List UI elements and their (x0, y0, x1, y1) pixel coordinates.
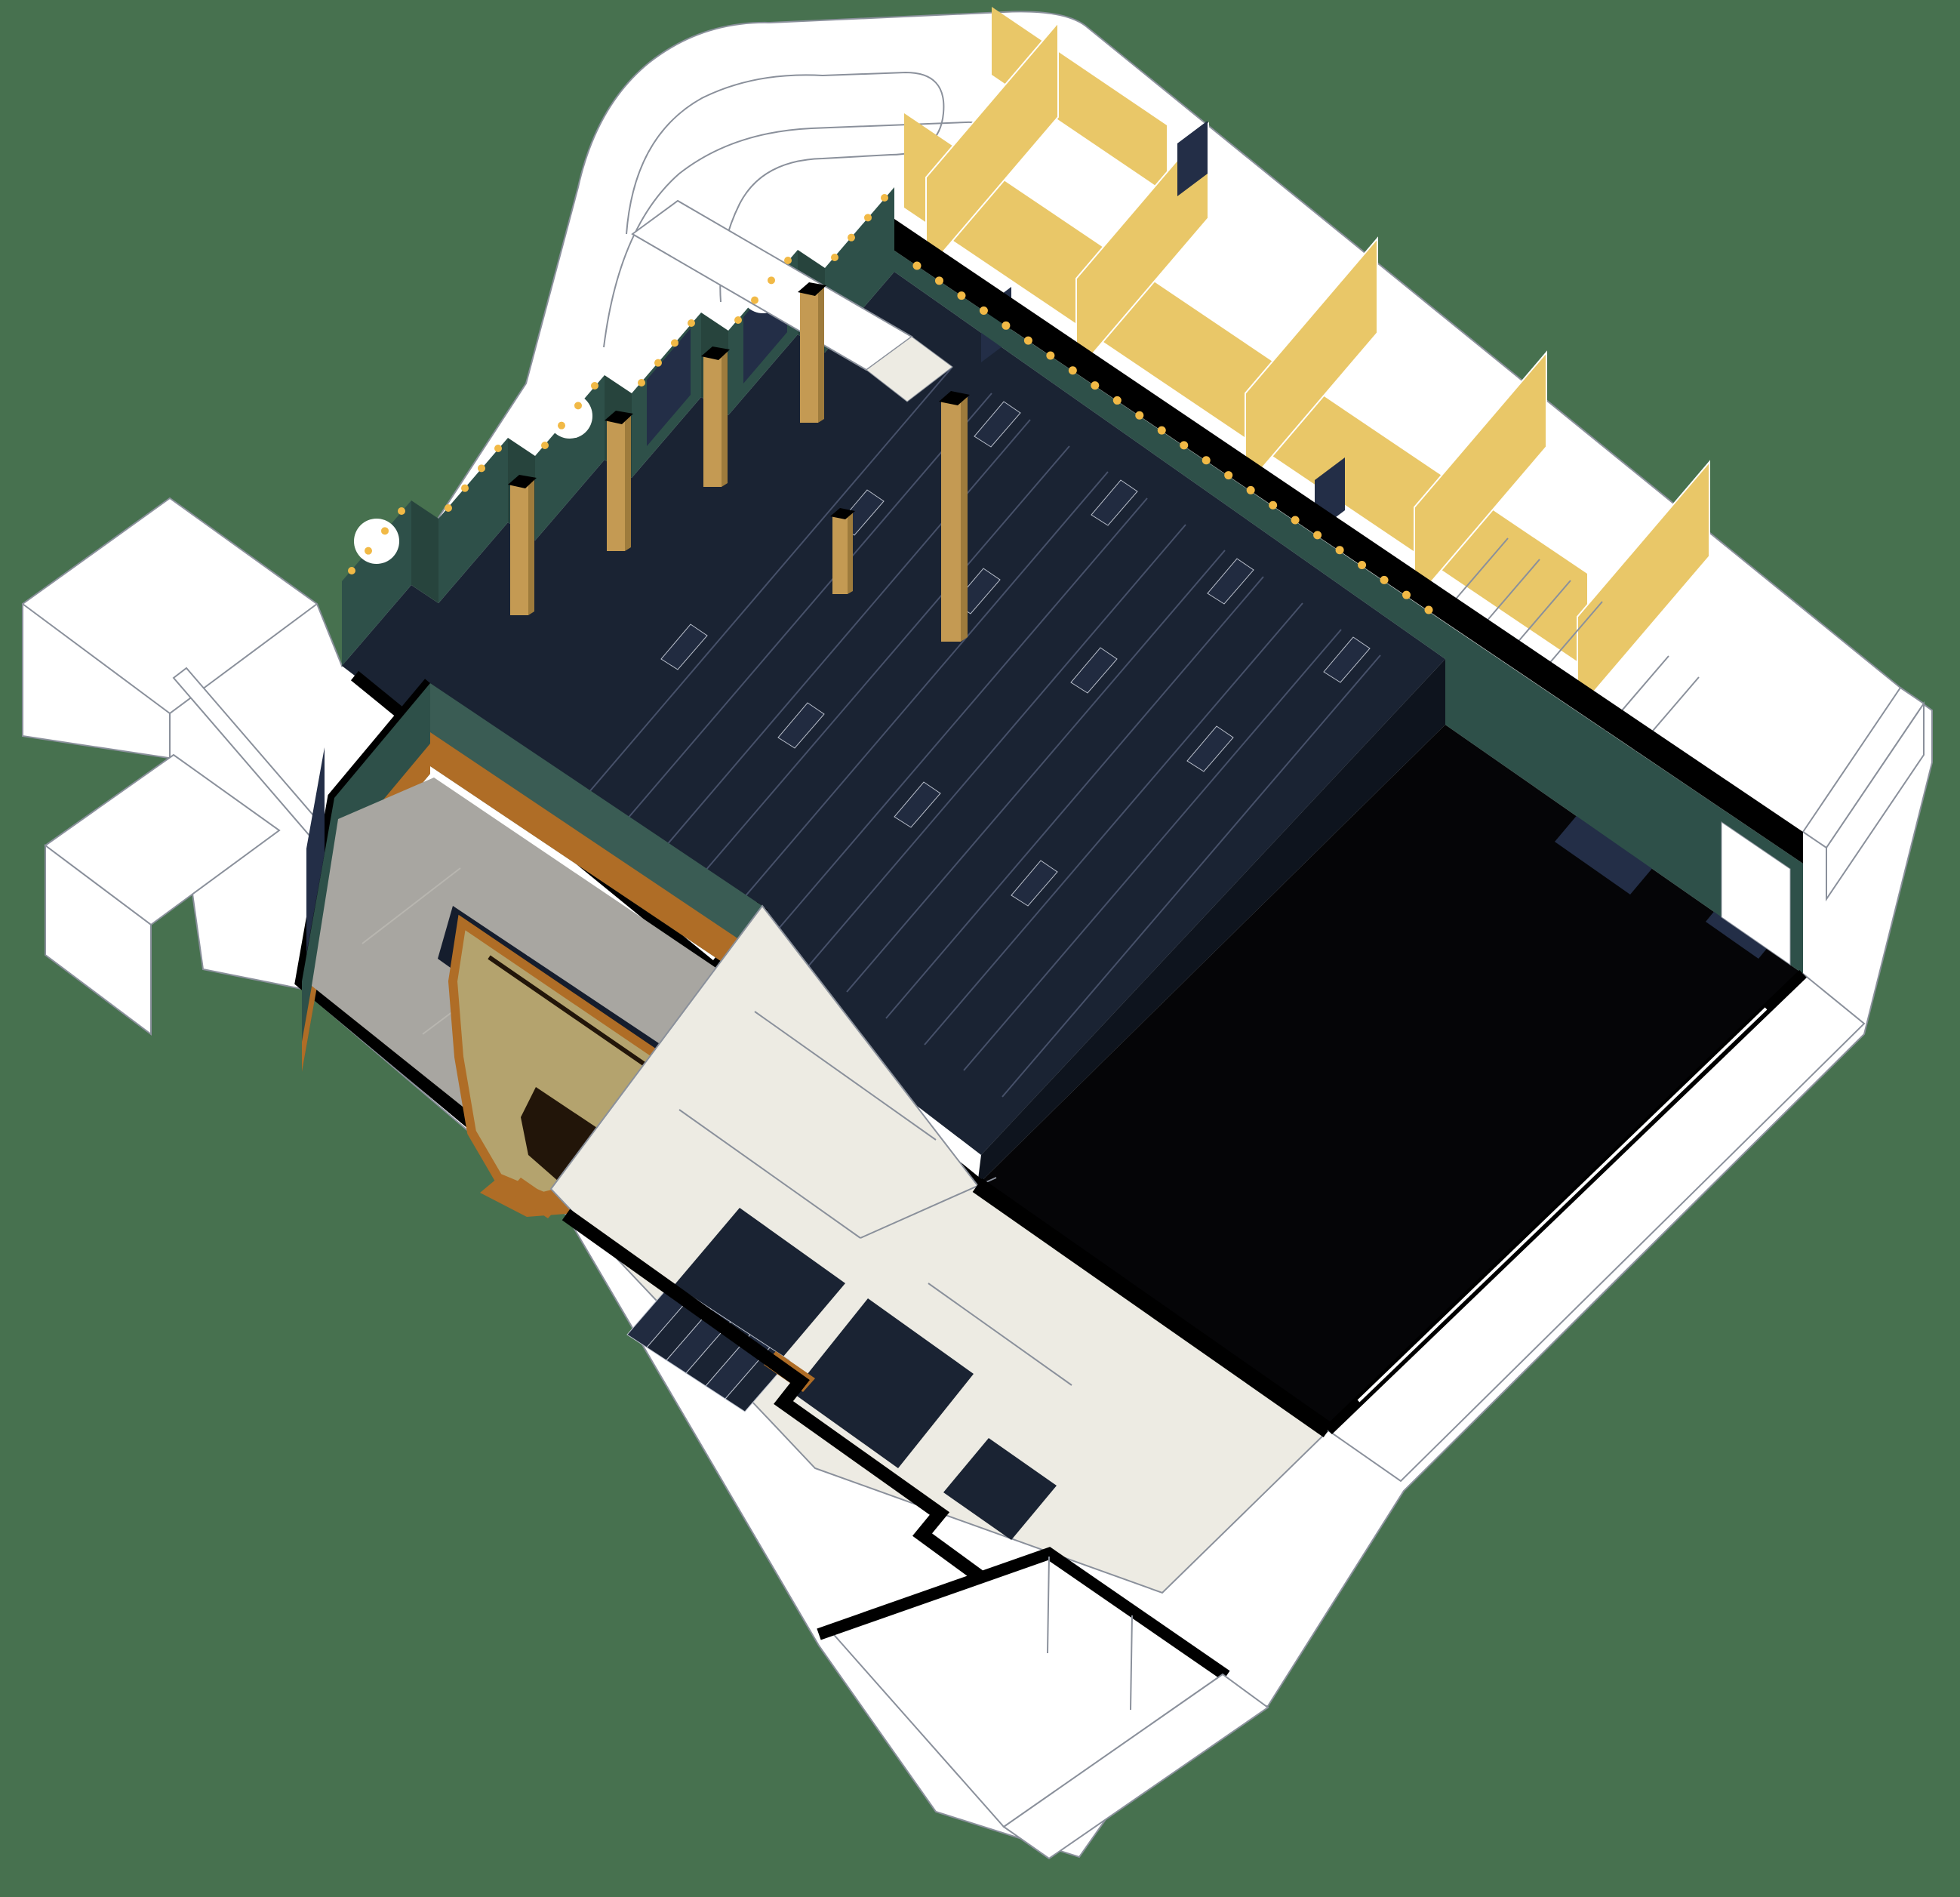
marquee-dots-ne-wall (1202, 456, 1211, 464)
column-side (722, 351, 728, 487)
marquee-dots-nw-bay (638, 379, 645, 386)
marquee-dots-ne-wall (1358, 561, 1366, 569)
marquee-dots-nw-bay (381, 527, 389, 534)
marquee-dots-nw-bay (881, 194, 888, 202)
marquee-dots-ne-wall (1069, 366, 1077, 374)
marquee-dots-ne-wall (1158, 427, 1166, 435)
marquee-dots-ne-wall (1313, 531, 1322, 539)
column-side (961, 396, 968, 642)
marquee-dots-nw-bay (784, 257, 792, 264)
marquee-dots-nw-bay (768, 276, 775, 284)
marquee-dots-ne-wall (1224, 471, 1232, 479)
marquee-dots-nw-bay (365, 547, 372, 555)
marquee-dots-nw-bay (734, 316, 742, 324)
marquee-dots-ne-wall (1024, 337, 1032, 345)
marquee-dots-nw-bay (398, 507, 405, 515)
marquee-dots-ne-wall (1269, 501, 1277, 510)
marquee-dots-ne-wall (935, 276, 943, 285)
axonometric-drawing-page (0, 0, 1960, 1897)
marquee-dots-nw-bay (848, 234, 855, 242)
marquee-dots-nw-bay (541, 442, 549, 449)
marquee-dots-nw-bay (558, 422, 565, 430)
marquee-dots-nw-bay (671, 339, 678, 346)
column-side (528, 479, 534, 615)
marquee-dots-ne-wall (1002, 322, 1010, 330)
marquee-dots-nw-bay (461, 485, 469, 492)
column-side (625, 415, 631, 551)
marquee-dots-ne-wall (1380, 576, 1389, 584)
column-shaft (800, 291, 818, 423)
column-side (848, 512, 853, 594)
column-shaft (703, 355, 722, 487)
marquee-dots-ne-wall (1291, 516, 1300, 525)
floor-plan-canvas (0, 0, 1960, 1897)
marquee-dots-ne-wall (1091, 381, 1099, 390)
marquee-dots-nw-bay (348, 567, 355, 574)
marquee-dots-nw-bay (591, 382, 598, 390)
marquee-dots-ne-wall (957, 291, 965, 300)
marquee-dots-ne-wall (1336, 546, 1344, 554)
wall-scallop (547, 393, 592, 439)
marquee-dots-ne-wall (1402, 591, 1411, 599)
marquee-dots-nw-bay (654, 359, 662, 367)
column-shaft (607, 419, 625, 551)
marquee-dots-nw-bay (494, 445, 502, 452)
marquee-dots-nw-bay (574, 402, 582, 409)
marquee-dots-nw-bay (751, 297, 758, 304)
marquee-dots-ne-wall (1425, 606, 1433, 614)
marquee-dots-nw-bay (864, 214, 872, 221)
nw-wall-tooth (411, 500, 438, 603)
marquee-dots-ne-wall (1247, 486, 1255, 494)
marquee-dots-ne-wall (913, 262, 922, 270)
marquee-dots-nw-bay (478, 464, 485, 472)
column-shaft (510, 483, 528, 615)
marquee-dots-nw-bay (688, 319, 695, 327)
column-side (818, 287, 824, 423)
marquee-dots-nw-bay (831, 254, 838, 261)
column-shaft (832, 515, 848, 594)
marquee-dots-ne-wall (1046, 351, 1054, 359)
marquee-dots-nw-bay (445, 504, 452, 512)
marquee-dots-ne-wall (980, 306, 988, 315)
marquee-dots-ne-wall (1113, 396, 1122, 405)
marquee-dots-ne-wall (1180, 441, 1188, 449)
column-shaft (941, 400, 961, 642)
marquee-dots-ne-wall (1135, 411, 1143, 420)
wall-scallop (354, 519, 399, 564)
